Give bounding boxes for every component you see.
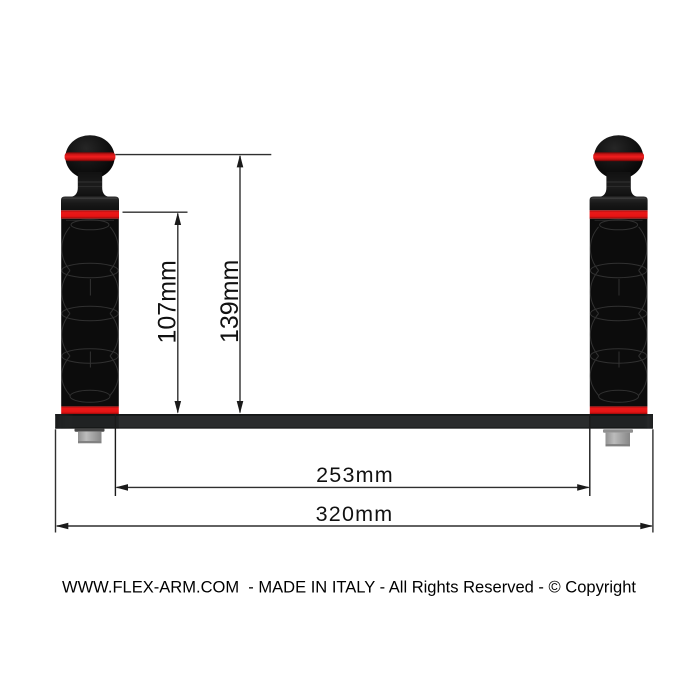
svg-text:253mm: 253mm: [316, 463, 394, 487]
svg-text:320mm: 320mm: [316, 502, 394, 526]
svg-text:WWW.FLEX-ARM.COM - MADE IN IT: WWW.FLEX-ARM.COM - MADE IN ITALY - All R…: [62, 578, 636, 597]
svg-text:139mm: 139mm: [216, 260, 244, 343]
svg-text:107mm: 107mm: [153, 260, 181, 343]
